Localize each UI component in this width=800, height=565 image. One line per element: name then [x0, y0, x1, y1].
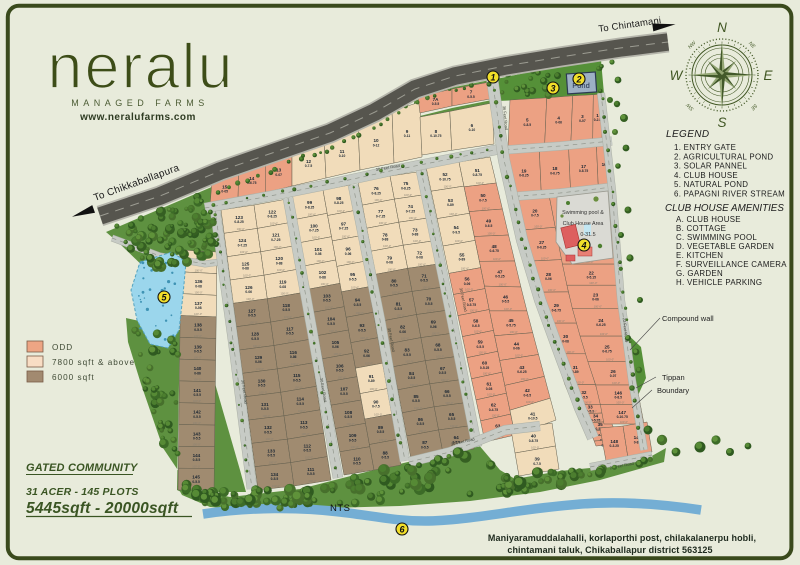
svg-text:0-5.5: 0-5.5 [349, 277, 357, 281]
svg-text:0-5.5: 0-5.5 [271, 477, 279, 481]
svg-text:0-5.5: 0-5.5 [296, 402, 304, 406]
svg-text:0-86: 0-86 [290, 355, 297, 359]
svg-text:H. VEHICLE PARKING: H. VEHICLE PARKING [676, 278, 762, 287]
svg-text:0-5.5: 0-5.5 [420, 279, 428, 283]
svg-text:S: S [717, 115, 726, 130]
svg-text:0-5.5: 0-5.5 [403, 353, 411, 357]
svg-text:0-5.5: 0-5.5 [282, 308, 290, 312]
svg-text:4: 4 [580, 240, 586, 250]
svg-text:0-10: 0-10 [339, 154, 346, 158]
svg-text:100′-0″: 100′-0″ [612, 381, 620, 385]
svg-text:0-6.75: 0-6.75 [550, 171, 560, 175]
svg-text:0-8.25: 0-8.25 [401, 186, 411, 190]
svg-text:0-7.5: 0-7.5 [531, 214, 539, 218]
svg-text:6. PAPAGNI RIVER STREAM: 6. PAPAGNI RIVER STREAM [674, 190, 785, 199]
svg-text:0-8.25: 0-8.25 [334, 201, 344, 205]
svg-text:0-8.25: 0-8.25 [519, 174, 529, 178]
svg-text:4. CLUB HOUSE: 4. CLUB HOUSE [674, 171, 738, 180]
svg-text:0-5.5: 0-5.5 [194, 328, 202, 332]
svg-text:0-10.5: 0-10.5 [528, 417, 538, 421]
svg-text:0-10: 0-10 [469, 128, 476, 132]
svg-text:100′-0″: 100′-0″ [606, 358, 614, 362]
svg-text:0-07: 0-07 [275, 173, 282, 177]
svg-text:E. KITCHEN: E. KITCHEN [676, 251, 723, 260]
svg-text:GATED COMMUNITY: GATED COMMUNITY [26, 462, 139, 474]
svg-text:0-5.5: 0-5.5 [425, 302, 433, 306]
svg-text:0-7.25: 0-7.25 [271, 238, 281, 242]
svg-text:0-8.25: 0-8.25 [268, 215, 278, 219]
svg-text:0-5.5: 0-5.5 [193, 437, 201, 441]
svg-text:0-06: 0-06 [464, 282, 471, 286]
svg-text:3: 3 [550, 83, 555, 93]
svg-text:0-5.5: 0-5.5 [476, 345, 484, 349]
svg-text:0-5.5: 0-5.5 [345, 415, 353, 419]
svg-text:0-8.25: 0-8.25 [305, 205, 315, 209]
svg-text:0-86: 0-86 [194, 371, 201, 375]
svg-text:100′-0″: 100′-0″ [534, 225, 542, 229]
svg-text:0-07: 0-07 [610, 374, 617, 378]
svg-text:100′-0″: 100′-0″ [193, 377, 201, 381]
svg-text:100′-0″: 100′-0″ [487, 232, 495, 236]
svg-text:0-5.5: 0-5.5 [358, 328, 366, 332]
svg-text:0-8.75: 0-8.75 [579, 169, 589, 173]
svg-text:0-6.75: 0-6.75 [552, 308, 562, 312]
svg-text:0-5.5: 0-5.5 [434, 348, 442, 352]
svg-text:neralu: neralu [47, 32, 234, 102]
svg-text:0-06: 0-06 [592, 298, 599, 302]
svg-text:0-07: 0-07 [579, 119, 586, 123]
svg-text:100′-0″: 100′-0″ [193, 399, 201, 403]
svg-text:0-5.5: 0-5.5 [408, 376, 416, 380]
svg-text:100′-0″: 100′-0″ [194, 334, 202, 338]
svg-text:0-5.5: 0-5.5 [448, 417, 456, 421]
svg-text:0-6.25: 0-6.25 [596, 323, 606, 327]
svg-text:G. GARDEN: G. GARDEN [676, 269, 723, 278]
svg-text:N: N [717, 20, 727, 35]
svg-text:100′-0″: 100′-0″ [548, 288, 556, 292]
svg-text:0-06: 0-06 [345, 252, 352, 256]
svg-text:0-7.5: 0-7.5 [372, 405, 380, 409]
svg-text:0-05: 0-05 [221, 190, 228, 194]
svg-text:0-7.25: 0-7.25 [309, 229, 319, 233]
svg-text:12: 12 [306, 159, 312, 164]
svg-text:0-5.5: 0-5.5 [421, 445, 429, 449]
svg-text:0-5.5: 0-5.5 [349, 438, 357, 442]
svg-text:100′-0″: 100′-0″ [499, 283, 507, 287]
svg-text:0-5.5: 0-5.5 [286, 332, 294, 336]
svg-text:100′-0″: 100′-0″ [493, 257, 501, 261]
svg-text:B. COTTAGE: B. COTTAGE [676, 224, 726, 233]
svg-text:0-08: 0-08 [195, 306, 202, 310]
svg-text:0-89: 0-89 [459, 258, 466, 262]
svg-text:0-5.5: 0-5.5 [353, 462, 361, 466]
svg-text:100′-0″: 100′-0″ [566, 350, 574, 354]
svg-text:0-06: 0-06 [545, 277, 552, 281]
svg-text:0-6.75: 0-6.75 [602, 350, 612, 354]
svg-text:0-6.5: 0-6.5 [524, 393, 532, 397]
svg-text:3. SOLAR PANNEL: 3. SOLAR PANNEL [674, 162, 748, 171]
svg-text:100′-0″: 100′-0″ [482, 206, 490, 210]
svg-text:CLUB HOUSE AMENITIES: CLUB HOUSE AMENITIES [665, 203, 784, 214]
svg-text:0-06: 0-06 [430, 325, 437, 329]
svg-text:2. AGRICULTURAL POND: 2. AGRICULTURAL POND [674, 152, 773, 161]
svg-text:100′-0″: 100′-0″ [266, 437, 274, 441]
svg-text:0-5.5: 0-5.5 [193, 393, 201, 397]
svg-text:0-5.5: 0-5.5 [192, 480, 200, 484]
svg-text:0-7.25: 0-7.25 [406, 209, 416, 213]
svg-text:LEGEND: LEGEND [666, 129, 710, 140]
svg-text:100′-0″: 100′-0″ [476, 181, 484, 185]
svg-text:0-8.75: 0-8.75 [473, 173, 483, 177]
svg-text:100′-0″: 100′-0″ [192, 443, 200, 447]
svg-text:0-89: 0-89 [368, 379, 375, 383]
svg-text:0-5.5: 0-5.5 [300, 425, 308, 429]
svg-text:0-8.25: 0-8.25 [234, 220, 244, 224]
svg-text:D. VEGETABLE GARDEN: D. VEGETABLE GARDEN [676, 242, 774, 251]
svg-text:0-4.75: 0-4.75 [489, 408, 499, 412]
svg-text:0-5.5: 0-5.5 [261, 407, 269, 411]
svg-text:0-08: 0-08 [386, 261, 393, 265]
svg-text:0-5.5: 0-5.5 [264, 430, 272, 434]
svg-text:NTS: NTS [330, 503, 351, 514]
svg-text:0-89: 0-89 [447, 203, 454, 207]
svg-text:100′-0″: 100′-0″ [594, 304, 602, 308]
svg-text:0-8.25: 0-8.25 [372, 191, 382, 195]
svg-text:1. ENTRY GATE: 1. ENTRY GATE [674, 143, 736, 152]
svg-text:0-5.5: 0-5.5 [307, 472, 315, 476]
svg-text:C. SWIMMING POOL: C. SWIMMING POOL [676, 233, 757, 242]
svg-text:100′-0″: 100′-0″ [510, 330, 518, 334]
svg-text:0-06: 0-06 [555, 121, 562, 125]
svg-text:31 ACER - 145 PLOTS: 31 ACER - 145 PLOTS [26, 486, 139, 498]
svg-text:0-10.75: 0-10.75 [439, 177, 450, 181]
svg-text:0-88: 0-88 [319, 275, 326, 279]
svg-text:0-5.5: 0-5.5 [251, 337, 259, 341]
svg-text:Compound wall: Compound wall [662, 314, 714, 323]
svg-text:9: 9 [406, 129, 409, 134]
svg-text:0-5.5: 0-5.5 [395, 307, 403, 311]
svg-text:Tippan: Tippan [662, 373, 685, 382]
svg-text:0-08: 0-08 [416, 256, 423, 260]
svg-text:0-11: 0-11 [404, 134, 411, 138]
svg-text:100′-0″: 100′-0″ [308, 479, 316, 483]
svg-text:www.neralufarms.com: www.neralufarms.com [79, 112, 196, 123]
svg-text:0-5.5: 0-5.5 [340, 392, 348, 396]
svg-text:0-08: 0-08 [195, 284, 202, 288]
svg-text:0-7.5: 0-7.5 [305, 164, 313, 168]
svg-text:0-7.25: 0-7.25 [376, 214, 386, 218]
svg-text:0-6.5: 0-6.5 [472, 324, 480, 328]
svg-text:0-5.5: 0-5.5 [412, 399, 420, 403]
svg-text:Boundary: Boundary [657, 386, 689, 395]
svg-text:0-8.5: 0-8.5 [614, 396, 622, 400]
svg-text:0-5.5: 0-5.5 [248, 314, 256, 318]
svg-text:0-06: 0-06 [255, 360, 262, 364]
svg-text:7800 sqft & above: 7800 sqft & above [52, 358, 135, 367]
svg-text:0-3.25: 0-3.25 [610, 444, 620, 448]
svg-text:0-31.5: 0-31.5 [580, 232, 595, 238]
svg-text:0-08: 0-08 [562, 339, 569, 343]
svg-text:0-5.5: 0-5.5 [267, 454, 275, 458]
svg-text:0-7.25: 0-7.25 [339, 227, 349, 231]
svg-text:0-5.5: 0-5.5 [258, 384, 266, 388]
svg-text:6000 sqft: 6000 sqft [52, 373, 95, 382]
svg-text:0-5.25: 0-5.25 [480, 366, 490, 370]
svg-text:0-5.5: 0-5.5 [502, 300, 510, 304]
svg-text:0-5.5: 0-5.5 [293, 378, 301, 382]
svg-text:E: E [763, 68, 773, 83]
svg-text:0-5.15: 0-5.15 [587, 276, 597, 280]
svg-text:Maniyaramuddalahalli, korlapor: Maniyaramuddalahalli, korlaporthi post, … [488, 533, 756, 543]
svg-text:ODD: ODD [52, 343, 73, 352]
svg-text:100′-0″: 100′-0″ [504, 307, 512, 311]
svg-text:0-6.75: 0-6.75 [490, 249, 500, 253]
svg-text:0-5.5: 0-5.5 [432, 102, 440, 106]
svg-text:0-5.5: 0-5.5 [417, 422, 425, 426]
svg-text:0-08: 0-08 [279, 285, 286, 289]
svg-text:MANAGED FARMS: MANAGED FARMS [71, 98, 209, 108]
svg-text:2: 2 [575, 74, 581, 84]
svg-text:0-5.5: 0-5.5 [439, 371, 447, 375]
svg-text:0-5.5: 0-5.5 [303, 449, 311, 453]
svg-text:0-8.75: 0-8.75 [529, 439, 539, 443]
svg-text:100′-0″: 100′-0″ [194, 291, 202, 295]
svg-text:0-08: 0-08 [486, 387, 493, 391]
svg-text:100′-0″: 100′-0″ [541, 256, 549, 260]
svg-text:0-5.5: 0-5.5 [377, 430, 385, 434]
svg-text:0-06: 0-06 [513, 347, 520, 351]
svg-text:0-06: 0-06 [363, 354, 370, 358]
svg-text:100′-0″: 100′-0″ [620, 420, 628, 424]
svg-text:100′-0″: 100′-0″ [589, 281, 597, 285]
svg-text:0-5.75: 0-5.75 [506, 323, 516, 327]
svg-text:0-6.5: 0-6.5 [485, 224, 493, 228]
svg-text:0-7.25: 0-7.25 [238, 243, 248, 247]
svg-text:100′-0″: 100′-0″ [192, 464, 200, 468]
svg-text:0-8.5: 0-8.5 [524, 123, 532, 127]
svg-text:Club House Area: Club House Area [563, 221, 604, 227]
svg-text:F. SURVEILLANCE CAMERA: F. SURVEILLANCE CAMERA [676, 260, 787, 269]
svg-text:100′-0″: 100′-0″ [193, 421, 201, 425]
svg-text:0-5.5: 0-5.5 [193, 458, 201, 462]
svg-text:0-10.75: 0-10.75 [430, 134, 441, 138]
svg-text:0-06: 0-06 [399, 330, 406, 334]
svg-text:0-12: 0-12 [373, 143, 380, 147]
svg-text:0-5.5: 0-5.5 [336, 369, 344, 373]
svg-text:0-7.5: 0-7.5 [479, 198, 487, 202]
svg-text:5445sqft - 20000sqft: 5445sqft - 20000sqft [26, 500, 179, 517]
svg-text:100′-0″: 100′-0″ [194, 356, 202, 360]
svg-text:100′-0″: 100′-0″ [262, 414, 270, 418]
svg-text:100′-0″: 100′-0″ [269, 461, 277, 465]
svg-text:100′-0″: 100′-0″ [616, 400, 624, 404]
svg-text:0-08: 0-08 [315, 252, 322, 256]
svg-text:100′-0″: 100′-0″ [355, 469, 363, 473]
svg-text:0-06: 0-06 [245, 290, 252, 294]
svg-text:0-5.5: 0-5.5 [390, 284, 398, 288]
svg-text:0-6.25: 0-6.25 [517, 370, 527, 374]
svg-text:100′-0″: 100′-0″ [195, 269, 203, 273]
svg-text:W: W [670, 68, 684, 83]
svg-text:0-5.25: 0-5.25 [495, 275, 505, 279]
svg-text:0-88: 0-88 [382, 238, 389, 242]
svg-text:1: 1 [490, 72, 495, 82]
svg-text:0-88: 0-88 [242, 267, 249, 271]
svg-text:0-5.5: 0-5.5 [354, 303, 362, 307]
svg-text:0-5.5: 0-5.5 [467, 95, 475, 99]
svg-text:100′-0″: 100′-0″ [557, 319, 565, 323]
svg-text:0-5.5: 0-5.5 [327, 322, 335, 326]
svg-text:0-88: 0-88 [276, 261, 283, 265]
svg-text:0-5.5: 0-5.5 [193, 415, 201, 419]
svg-text:0-5.5: 0-5.5 [194, 350, 202, 354]
svg-text:A. CLUB HOUSE: A. CLUB HOUSE [676, 215, 741, 224]
svg-text:100′-0″: 100′-0″ [272, 484, 280, 488]
svg-text:0-5.5: 0-5.5 [323, 299, 331, 303]
svg-text:0-7.5: 0-7.5 [533, 462, 541, 466]
svg-text:chintamani taluk, Chikaballapu: chintamani taluk, Chikaballapur district… [507, 545, 712, 555]
svg-text:0-06: 0-06 [332, 345, 339, 349]
svg-text:0-9.5: 0-9.5 [452, 230, 460, 234]
svg-text:5. NATURAL POND: 5. NATURAL POND [674, 180, 748, 189]
svg-text:100′-0″: 100′-0″ [600, 332, 608, 336]
svg-text:Swimming pool &: Swimming pool & [562, 210, 604, 216]
svg-text:0-5.5: 0-5.5 [381, 456, 389, 460]
svg-text:0-10.75: 0-10.75 [617, 415, 628, 419]
svg-text:0-88: 0-88 [412, 233, 419, 237]
svg-text:11: 11 [340, 149, 345, 154]
svg-text:0-6.25: 0-6.25 [537, 245, 547, 249]
svg-text:0-5.5: 0-5.5 [443, 394, 451, 398]
svg-text:100′-0″: 100′-0″ [194, 312, 202, 316]
